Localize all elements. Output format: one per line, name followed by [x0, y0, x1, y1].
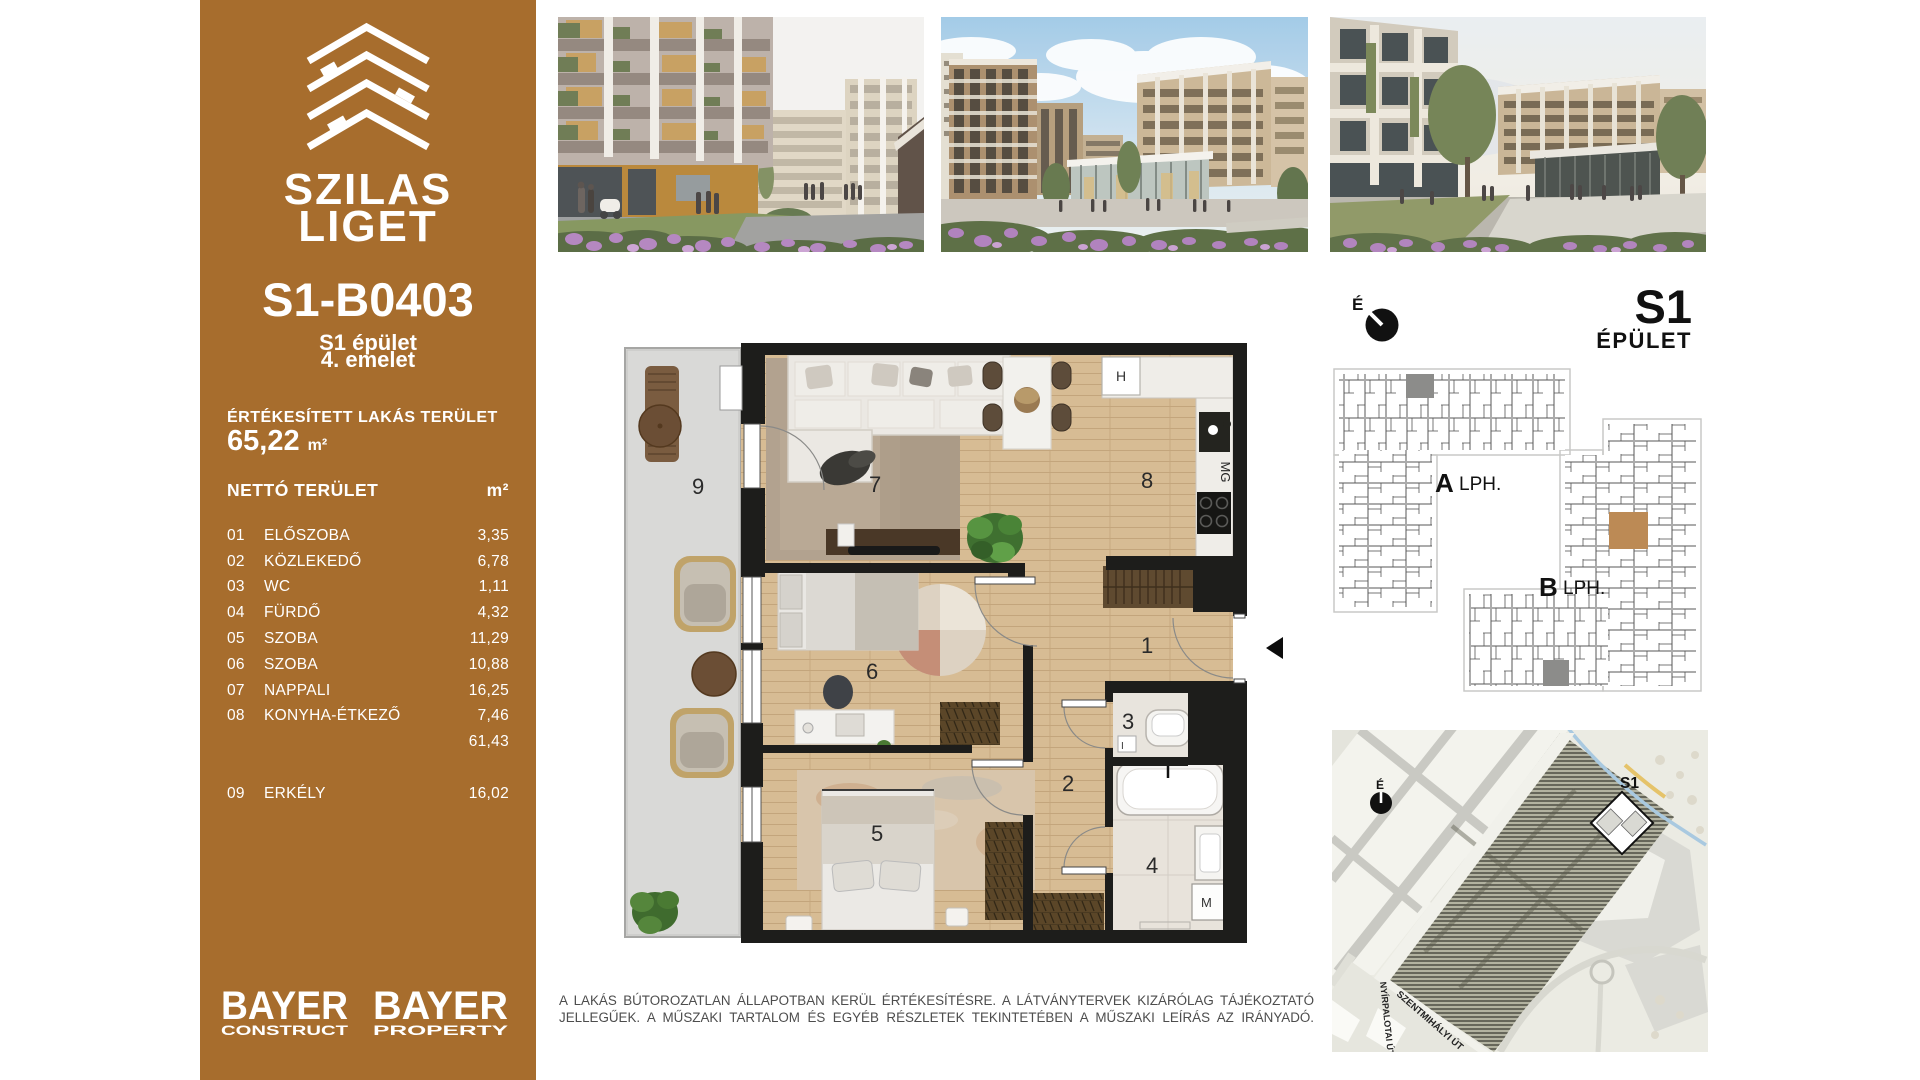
svg-text:LPH.: LPH.: [1563, 578, 1605, 599]
svg-text:5: 5: [871, 821, 883, 846]
svg-text:B: B: [1539, 572, 1558, 602]
svg-text:3: 3: [1122, 709, 1134, 734]
svg-text:S1: S1: [1635, 280, 1693, 333]
svg-text:6: 6: [866, 659, 878, 684]
svg-text:2: 2: [1062, 771, 1074, 796]
svg-text:ÉPÜLET: ÉPÜLET: [1596, 328, 1692, 353]
svg-text:M: M: [1201, 895, 1212, 910]
svg-text:LPH.: LPH.: [1459, 474, 1501, 495]
svg-text:A: A: [1435, 468, 1454, 498]
svg-text:S1: S1: [1620, 775, 1639, 792]
svg-text:1: 1: [1141, 633, 1153, 658]
svg-text:É: É: [1376, 777, 1384, 792]
svg-text:4: 4: [1146, 853, 1158, 878]
svg-text:7: 7: [869, 472, 881, 497]
svg-text:É: É: [1352, 295, 1363, 314]
svg-text:8: 8: [1141, 468, 1153, 493]
svg-text:H: H: [1116, 368, 1126, 384]
svg-text:9: 9: [692, 474, 704, 499]
svg-text:I: I: [1121, 741, 1124, 752]
svg-text:MG: MG: [1218, 462, 1233, 483]
